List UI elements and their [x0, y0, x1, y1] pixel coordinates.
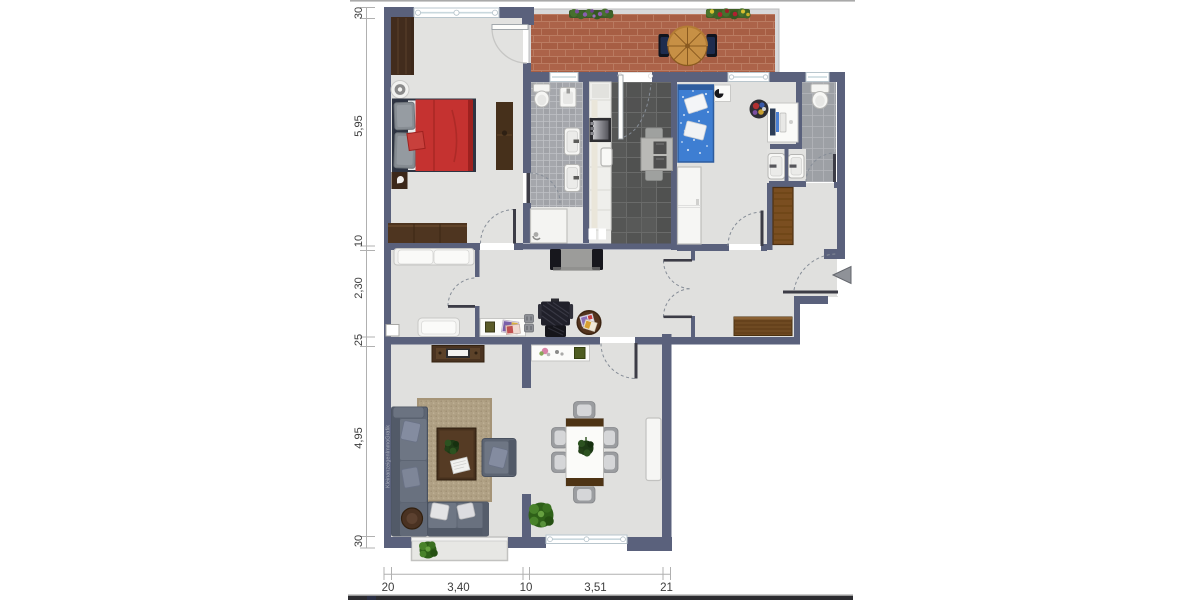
svg-text:3,40: 3,40: [447, 582, 469, 594]
svg-text:20: 20: [382, 582, 395, 594]
svg-text:10: 10: [353, 235, 365, 247]
svg-text:KleinanzeigenImmoGrafik: KleinanzeigenImmoGrafik: [386, 425, 392, 488]
svg-text:21: 21: [660, 582, 673, 594]
svg-text:5,95: 5,95: [353, 115, 365, 136]
svg-text:10: 10: [520, 582, 533, 594]
svg-text:2,30: 2,30: [353, 277, 365, 298]
svg-text:25: 25: [353, 334, 365, 346]
svg-text:4,95: 4,95: [353, 427, 365, 448]
svg-text:30: 30: [353, 7, 365, 19]
svg-text:30: 30: [353, 535, 365, 547]
svg-text:3,51: 3,51: [584, 582, 606, 594]
